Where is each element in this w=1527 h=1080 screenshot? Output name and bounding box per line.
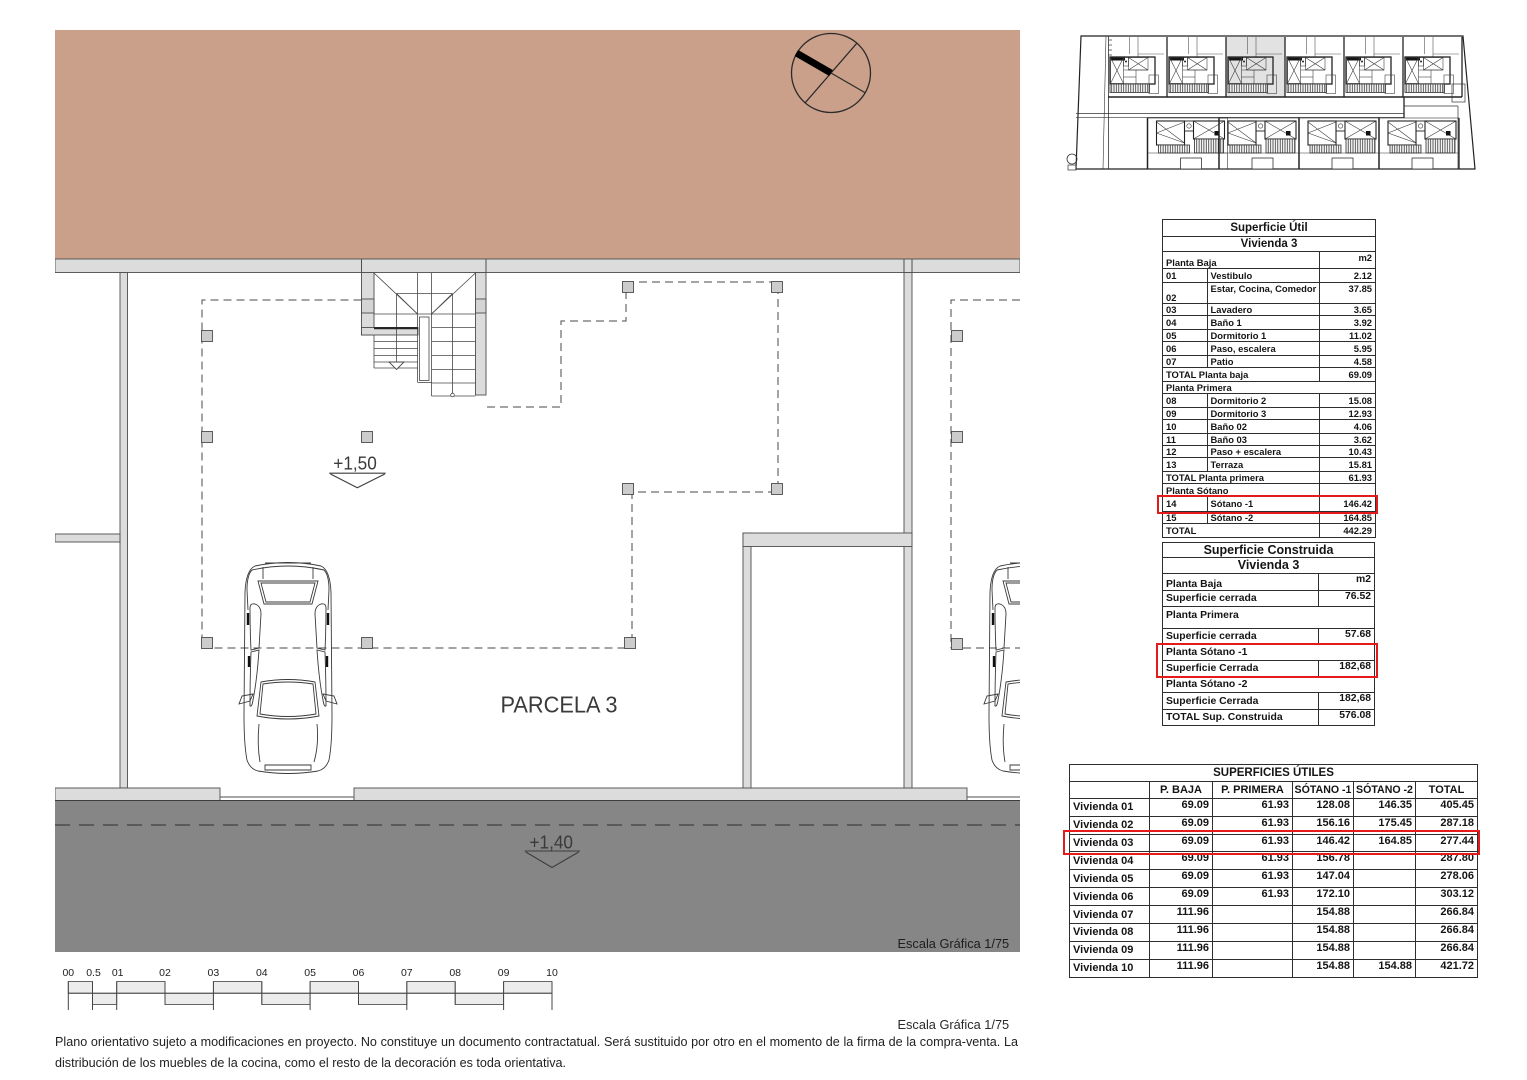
svg-text:02: 02 (159, 967, 171, 979)
svg-text:04: 04 (256, 967, 268, 979)
svg-text:03: 03 (208, 967, 220, 979)
svg-text:01: 01 (112, 967, 124, 979)
svg-text:+1,40: +1,40 (530, 833, 574, 853)
svg-text:0.5: 0.5 (86, 967, 101, 979)
svg-text:09: 09 (498, 967, 510, 979)
svg-text:10: 10 (546, 967, 558, 979)
svg-text:Escala Gráfica 1/75: Escala Gráfica 1/75 (898, 936, 1010, 951)
svg-text:PARCELA 3: PARCELA 3 (501, 692, 618, 718)
svg-text:08: 08 (449, 967, 461, 979)
svg-text:07: 07 (401, 967, 413, 979)
svg-text:05: 05 (304, 967, 316, 979)
svg-text:06: 06 (353, 967, 365, 979)
svg-text:00: 00 (62, 967, 74, 979)
svg-text:Escala Gráfica 1/75: Escala Gráfica 1/75 (898, 1017, 1010, 1032)
svg-text:+1,50: +1,50 (333, 454, 377, 474)
